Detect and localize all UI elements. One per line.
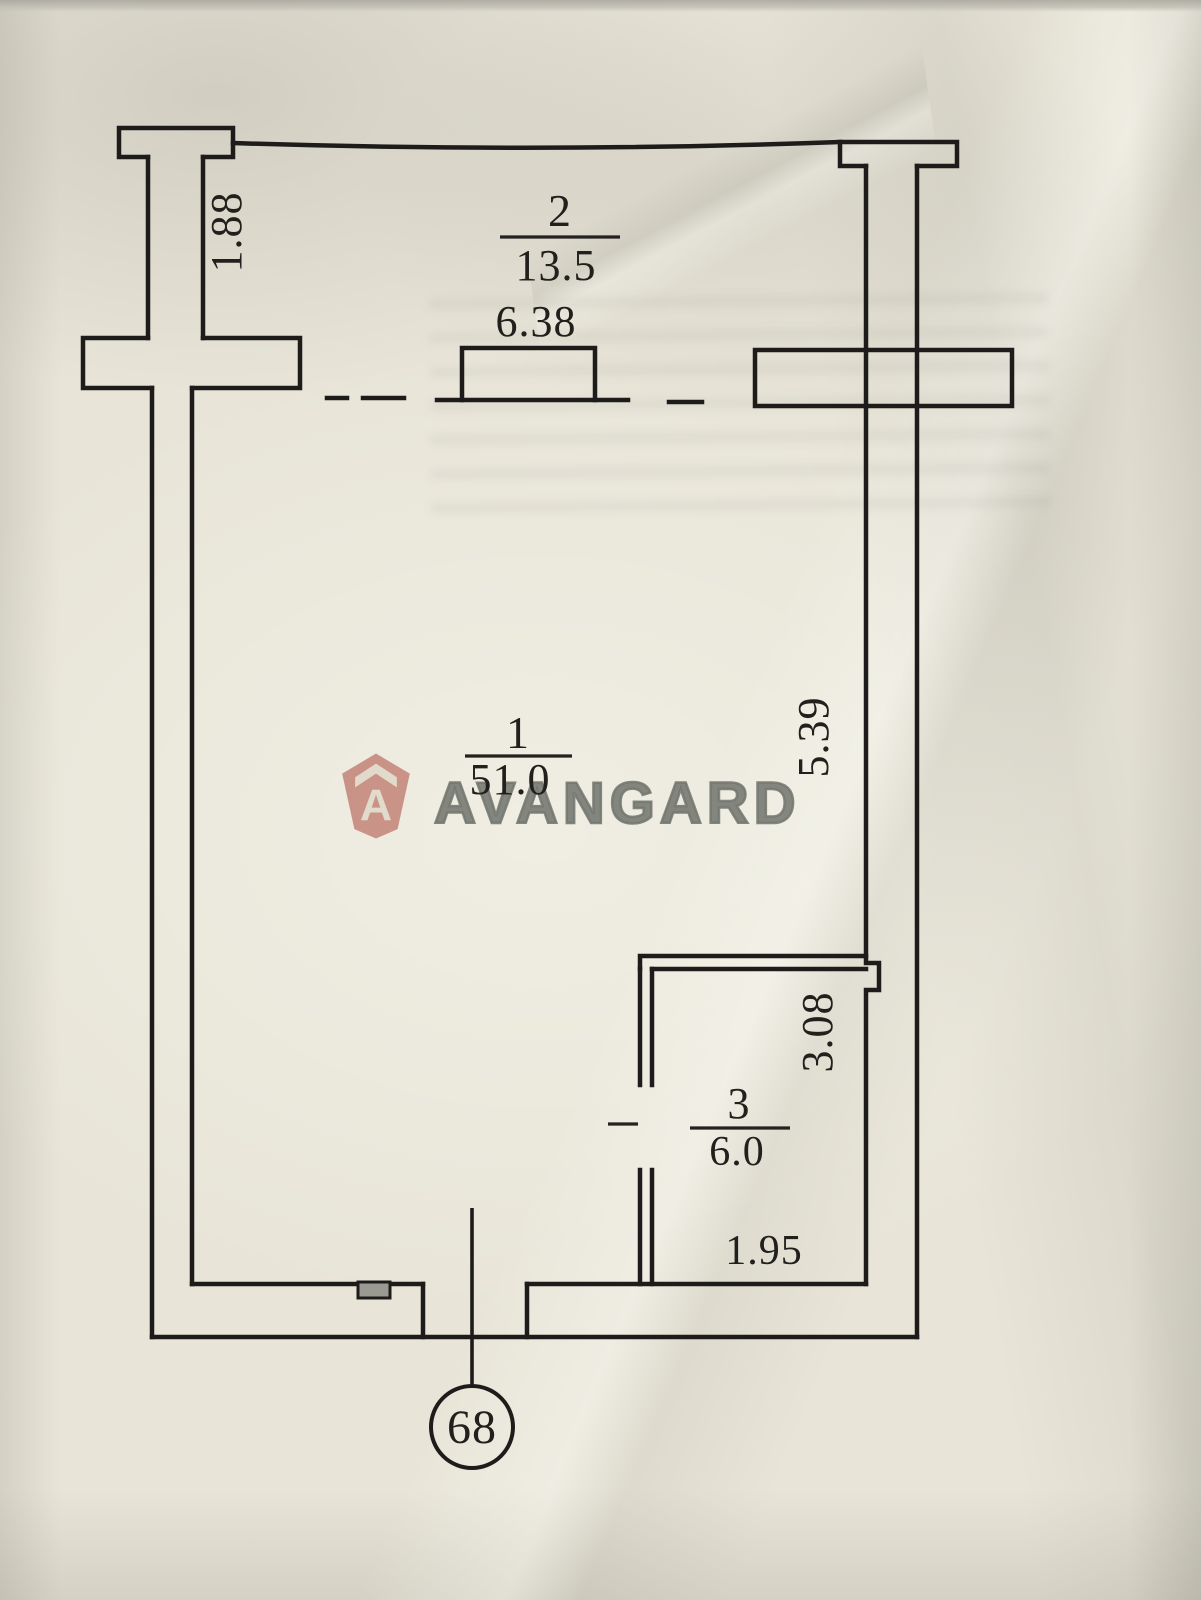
dimension-label-room3-width: 1.95 [725,1230,803,1272]
door-notch [358,1282,390,1298]
unit-number-label: 68 [447,1404,497,1452]
room-area-label-2: 13.5 [516,244,597,288]
floor-plan-drawing [0,0,1201,1600]
dimension-label-balcony-depth: 1.88 [205,192,249,273]
dimension-label-room3-height: 3.08 [796,992,840,1073]
room-area-label-1: 51.0 [470,758,551,802]
room-number-label-3: 3 [728,1082,751,1126]
room3-fraction-bar [608,1124,790,1128]
room-area-label-3: 6.0 [709,1131,765,1173]
dimension-lines [465,237,790,1128]
window-symbol [462,348,595,400]
floor-plan-scan: A AVANGARD [0,0,1201,1600]
room-number-label-1: 1 [506,710,530,756]
dimension-label-balcony-width: 6.38 [496,300,577,344]
balcony-divider [327,348,702,402]
dimension-label-room1-right: 5.39 [792,697,836,778]
room-number-label-2: 2 [548,188,572,234]
